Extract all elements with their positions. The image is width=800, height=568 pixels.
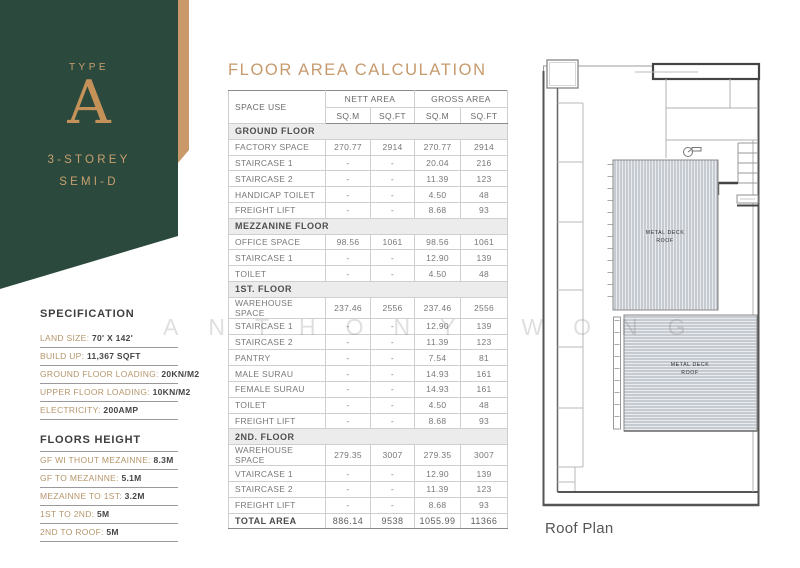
deck2-gutter: [614, 317, 621, 429]
table-row: FREIGHT LIFT--8.6893: [229, 497, 508, 513]
area-value-cell: -: [326, 202, 371, 218]
col-header-sqm: SQ.M: [326, 108, 371, 124]
spec-item-value: 5M: [97, 509, 109, 519]
spec-item-label: UPPER FLOOR LOADING:: [40, 387, 153, 397]
specification-heading: SPECIFICATION: [40, 308, 178, 320]
roof-plan-caption: Roof Plan: [545, 520, 614, 537]
table-row: STAIRCASE 2--11.39123: [229, 171, 508, 187]
spec-item: 1ST TO 2ND: 5M: [40, 506, 178, 524]
storey-label: 3-STOREY: [0, 154, 178, 166]
spec-item-label: GROUND FLOOR LOADING:: [40, 369, 161, 379]
area-value-cell: 161: [461, 381, 508, 397]
area-value-cell: -: [371, 266, 415, 282]
specification-list: LAND SIZE: 70' X 142'BUILD UP: 11,367 SQ…: [40, 330, 178, 420]
space-use-cell: STAIRCASE 1: [229, 250, 326, 266]
spec-item-value: 3.2M: [125, 491, 145, 501]
space-use-cell: WAREHOUSE SPACE: [229, 297, 326, 318]
area-value-cell: -: [326, 397, 371, 413]
space-use-cell: TOILET: [229, 397, 326, 413]
spec-item: ELECTRICITY: 200AMP: [40, 402, 178, 420]
table-row: WAREHOUSE SPACE237.462556237.462556: [229, 297, 508, 318]
space-use-cell: MALE SURAU: [229, 366, 326, 382]
page-title: FLOOR AREA CALCULATION: [228, 61, 487, 80]
area-value-cell: 9538: [371, 513, 415, 529]
space-use-cell: STAIRCASE 2: [229, 481, 326, 497]
area-value-cell: -: [371, 397, 415, 413]
table-row: STAIRCASE 1--12.90139: [229, 318, 508, 334]
area-value-cell: 14.93: [415, 381, 461, 397]
area-value-cell: 1061: [371, 234, 415, 250]
area-value-cell: -: [371, 318, 415, 334]
area-value-cell: 139: [461, 466, 508, 482]
area-value-cell: 279.35: [326, 445, 371, 466]
spec-item: GROUND FLOOR LOADING: 20KN/M2: [40, 366, 178, 384]
area-value-cell: -: [326, 266, 371, 282]
area-value-cell: 139: [461, 250, 508, 266]
area-value-cell: -: [326, 171, 371, 187]
table-section-row: GROUND FLOOR: [229, 124, 508, 140]
area-value-cell: 4.50: [415, 187, 461, 203]
spec-item-value: 20KN/M2: [161, 369, 199, 379]
area-value-cell: 81: [461, 350, 508, 366]
area-value-cell: -: [371, 334, 415, 350]
area-value-cell: 20.04: [415, 155, 461, 171]
spec-item-value: 70' X 142': [92, 333, 133, 343]
spec-item-label: ELECTRICITY:: [40, 405, 103, 415]
area-value-cell: -: [326, 413, 371, 429]
area-value-cell: 48: [461, 397, 508, 413]
space-use-cell: FACTORY SPACE: [229, 139, 326, 155]
area-value-cell: 161: [461, 366, 508, 382]
area-value-cell: 216: [461, 155, 508, 171]
col-header-sqft: SQ.FT: [461, 108, 508, 124]
area-value-cell: 98.56: [326, 234, 371, 250]
table-row: PANTRY--7.5481: [229, 350, 508, 366]
area-value-cell: -: [371, 481, 415, 497]
area-value-cell: 14.93: [415, 366, 461, 382]
area-value-cell: 123: [461, 334, 508, 350]
floor-area-table: SPACE USE NETT AREA GROSS AREA SQ.M SQ.F…: [228, 90, 508, 529]
area-value-cell: -: [371, 413, 415, 429]
type-letter: A: [0, 72, 178, 134]
space-use-cell: FREIGHT LIFT: [229, 497, 326, 513]
area-value-cell: 11.39: [415, 334, 461, 350]
space-use-cell: PANTRY: [229, 350, 326, 366]
section-label: 2ND. FLOOR: [229, 429, 508, 445]
floors-height-list: GF WI THOUT MEZAINNE: 8.3MGF TO MEZAINNE…: [40, 452, 178, 542]
table-row: STAIRCASE 2--11.39123: [229, 481, 508, 497]
floors-height-heading: FLOORS HEIGHT: [40, 434, 178, 452]
area-value-cell: -: [371, 250, 415, 266]
area-value-cell: -: [326, 366, 371, 382]
area-value-cell: -: [371, 381, 415, 397]
area-value-cell: -: [371, 466, 415, 482]
area-value-cell: -: [326, 334, 371, 350]
space-use-cell: FEMALE SURAU: [229, 381, 326, 397]
spec-item-label: 1ST TO 2ND:: [40, 509, 97, 519]
area-value-cell: -: [326, 250, 371, 266]
area-value-cell: -: [371, 497, 415, 513]
spec-item-value: 5.1M: [121, 473, 141, 483]
area-value-cell: 270.77: [326, 139, 371, 155]
metal-deck-roof-1-label-line1: METAL DECK: [646, 230, 685, 236]
space-use-cell: WAREHOUSE SPACE: [229, 445, 326, 466]
col-header-gross-area: GROSS AREA: [415, 91, 508, 108]
spec-item: BUILD UP: 11,367 SQFT: [40, 348, 178, 366]
table-row: STAIRCASE 2--11.39123: [229, 334, 508, 350]
table-row: TOILET--4.5048: [229, 397, 508, 413]
col-header-space-use: SPACE USE: [229, 91, 326, 124]
spec-item-value: 5M: [106, 527, 118, 537]
area-value-cell: 2556: [371, 297, 415, 318]
space-use-cell: FREIGHT LIFT: [229, 202, 326, 218]
area-value-cell: 93: [461, 202, 508, 218]
area-value-cell: -: [326, 187, 371, 203]
table-section-row: MEZZANINE FLOOR: [229, 218, 508, 234]
area-value-cell: 4.50: [415, 266, 461, 282]
area-value-cell: -: [326, 497, 371, 513]
spec-item-label: LAND SIZE:: [40, 333, 92, 343]
area-value-cell: -: [371, 155, 415, 171]
metal-deck-roof-2-label-line2: ROOF: [681, 370, 698, 376]
area-value-cell: -: [371, 350, 415, 366]
area-value-cell: -: [326, 318, 371, 334]
area-value-cell: 8.68: [415, 413, 461, 429]
col-header-sqft: SQ.FT: [371, 108, 415, 124]
section-label: MEZZANINE FLOOR: [229, 218, 508, 234]
area-value-cell: -: [326, 350, 371, 366]
table-row: STAIRCASE 1--12.90139: [229, 250, 508, 266]
area-value-cell: 237.46: [326, 297, 371, 318]
area-value-cell: 123: [461, 481, 508, 497]
spec-item-label: BUILD UP:: [40, 351, 87, 361]
spec-item-value: 200AMP: [103, 405, 138, 415]
semid-label: SEMI-D: [0, 176, 178, 188]
area-value-cell: 4.50: [415, 397, 461, 413]
spec-item-label: 2ND TO ROOF:: [40, 527, 106, 537]
area-value-cell: -: [326, 155, 371, 171]
table-row: MALE SURAU--14.93161: [229, 366, 508, 382]
table-section-row: 1ST. FLOOR: [229, 281, 508, 297]
table-row: WAREHOUSE SPACE279.353007279.353007: [229, 445, 508, 466]
spec-item: UPPER FLOOR LOADING: 10KN/M2: [40, 384, 178, 402]
area-value-cell: 270.77: [415, 139, 461, 155]
table-row: OFFICE SPACE98.56106198.561061: [229, 234, 508, 250]
spec-item-label: GF TO MEZAINNE:: [40, 473, 121, 483]
area-value-cell: -: [371, 366, 415, 382]
spec-item-value: 10KN/M2: [153, 387, 191, 397]
area-value-cell: -: [326, 381, 371, 397]
area-value-cell: -: [326, 481, 371, 497]
area-value-cell: 12.90: [415, 250, 461, 266]
metal-deck-roof-1-label-line2: ROOF: [656, 238, 673, 244]
metal-deck-roof-2-label-line1: METAL DECK: [671, 362, 710, 368]
spec-item: 2ND TO ROOF: 5M: [40, 524, 178, 542]
area-value-cell: 279.35: [415, 445, 461, 466]
area-value-cell: 8.68: [415, 202, 461, 218]
area-value-cell: -: [371, 187, 415, 203]
table-row: TOTAL AREA886.1495381055.9911366: [229, 513, 508, 529]
area-value-cell: 93: [461, 413, 508, 429]
space-use-cell: STAIRCASE 2: [229, 171, 326, 187]
area-value-cell: 7.54: [415, 350, 461, 366]
space-use-cell: STAIRCASE 1: [229, 318, 326, 334]
space-use-cell: HANDICAP TOILET: [229, 187, 326, 203]
space-use-cell: TOTAL AREA: [229, 513, 326, 529]
space-use-cell: VTAIRCASE 1: [229, 466, 326, 482]
table-section-row: 2ND. FLOOR: [229, 429, 508, 445]
area-value-cell: 2914: [371, 139, 415, 155]
area-value-cell: 886.14: [326, 513, 371, 529]
area-value-cell: 237.46: [415, 297, 461, 318]
table-row: FREIGHT LIFT--8.6893: [229, 413, 508, 429]
area-value-cell: 12.90: [415, 318, 461, 334]
area-value-cell: -: [371, 171, 415, 187]
specification-block: SPECIFICATION LAND SIZE: 70' X 142'BUILD…: [40, 308, 178, 542]
area-value-cell: 1055.99: [415, 513, 461, 529]
section-label: GROUND FLOOR: [229, 124, 508, 140]
space-use-cell: STAIRCASE 2: [229, 334, 326, 350]
section-label: 1ST. FLOOR: [229, 281, 508, 297]
area-value-cell: 11366: [461, 513, 508, 529]
area-value-cell: 12.90: [415, 466, 461, 482]
spec-item-label: GF WI THOUT MEZAINNE:: [40, 455, 153, 465]
space-use-cell: OFFICE SPACE: [229, 234, 326, 250]
roof-plan-drawing: METAL DECK ROOF METAL DECK ROOF: [542, 58, 762, 510]
table-row: FEMALE SURAU--14.93161: [229, 381, 508, 397]
area-value-cell: -: [371, 202, 415, 218]
area-value-cell: 48: [461, 266, 508, 282]
area-value-cell: 48: [461, 187, 508, 203]
col-header-sqm: SQ.M: [415, 108, 461, 124]
area-value-cell: 3007: [371, 445, 415, 466]
table-row: FACTORY SPACE270.772914270.772914: [229, 139, 508, 155]
spec-item-value: 8.3M: [153, 455, 173, 465]
spec-item-label: MEZAINNE TO 1ST:: [40, 491, 125, 501]
space-use-cell: STAIRCASE 1: [229, 155, 326, 171]
area-value-cell: 123: [461, 171, 508, 187]
table-row: HANDICAP TOILET--4.5048: [229, 187, 508, 203]
area-value-cell: 93: [461, 497, 508, 513]
area-value-cell: 139: [461, 318, 508, 334]
spec-item-value: 11,367 SQFT: [87, 351, 141, 361]
page: { "panel": { "type_label": "TYPE", "type…: [0, 0, 800, 568]
area-value-cell: 1061: [461, 234, 508, 250]
type-panel: [0, 0, 178, 289]
area-value-cell: 98.56: [415, 234, 461, 250]
table-row: FREIGHT LIFT--8.6893: [229, 202, 508, 218]
table-row: VTAIRCASE 1--12.90139: [229, 466, 508, 482]
gold-accent-stripe: [178, 0, 189, 163]
spec-item: MEZAINNE TO 1ST: 3.2M: [40, 488, 178, 506]
area-value-cell: 3007: [461, 445, 508, 466]
area-value-cell: 2556: [461, 297, 508, 318]
spec-item: GF WI THOUT MEZAINNE: 8.3M: [40, 452, 178, 470]
area-value-cell: 11.39: [415, 171, 461, 187]
spec-item: GF TO MEZAINNE: 5.1M: [40, 470, 178, 488]
space-use-cell: TOILET: [229, 266, 326, 282]
spec-item: LAND SIZE: 70' X 142': [40, 330, 178, 348]
top-left-box: [547, 60, 578, 88]
area-value-cell: 8.68: [415, 497, 461, 513]
area-value-cell: -: [326, 466, 371, 482]
area-value-cell: 11.39: [415, 481, 461, 497]
table-row: TOILET--4.5048: [229, 266, 508, 282]
table-row: STAIRCASE 1--20.04216: [229, 155, 508, 171]
col-header-nett-area: NETT AREA: [326, 91, 415, 108]
space-use-cell: FREIGHT LIFT: [229, 413, 326, 429]
area-value-cell: 2914: [461, 139, 508, 155]
